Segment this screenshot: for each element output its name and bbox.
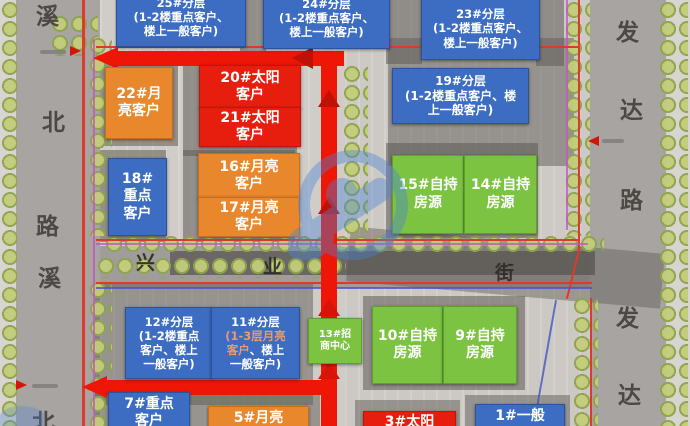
- entrance-arrow-icon: [16, 380, 27, 390]
- right-road-label: 达: [618, 385, 641, 408]
- left-road-label: 溪: [38, 268, 61, 291]
- route-arrowhead-up-icon: [318, 299, 340, 316]
- route-line-magenta: [93, 40, 95, 426]
- tree-row: [0, 0, 17, 426]
- zone-box-1: 1#一般: [475, 404, 565, 426]
- entrance-arrow-icon: [588, 136, 599, 146]
- zone-box-10: 10#自持房源: [372, 306, 443, 384]
- route-arrowhead-up-icon: [318, 362, 340, 379]
- zone-box-17: 17#月亮客户: [198, 197, 300, 237]
- route-line-magenta: [566, 0, 568, 230]
- left-road-label: 路: [36, 216, 59, 239]
- right-road-label: 发: [616, 308, 639, 331]
- site-boundary-line: [82, 0, 85, 426]
- right-road-label: 达: [620, 100, 643, 123]
- zone-box-18: 18#重点客户: [108, 158, 167, 236]
- zone-box-25: 25#分层(1-2楼重点客户、楼上一般客户): [116, 0, 246, 47]
- zone-box-20: 20#太阳客户: [199, 65, 301, 109]
- watermark-logo-icon: [0, 406, 44, 426]
- entrance-arrow-icon: [70, 46, 81, 56]
- zone-box-24: 24#分层(1-2楼重点客户、楼上一般客户): [263, 0, 390, 49]
- middle-street-label: 业: [263, 258, 282, 277]
- zone-box-19: 19#分层(1-2楼重点客户、楼上一般客户): [392, 68, 529, 124]
- zone-box-21: 21#太阳客户: [199, 107, 301, 147]
- route-arrowhead-left-icon: [82, 376, 107, 398]
- site-boundary-line: [96, 282, 592, 284]
- tree-row: [572, 296, 598, 426]
- right-road-label: 发: [616, 22, 639, 45]
- site-boundary-line: [590, 298, 592, 426]
- zone-box-11: 11#分层 (1-3层月亮 客户、楼上 一般客户): [211, 307, 300, 379]
- route-arrowhead-up-icon: [318, 90, 340, 107]
- zone-box-5: 5#月亮: [208, 406, 309, 426]
- route-line-magenta: [96, 243, 588, 245]
- route-arrowhead-left-icon: [93, 47, 118, 69]
- zone-box-15: 15#自持房源: [392, 155, 464, 234]
- zone-box-22: 22#月亮客户: [105, 67, 173, 139]
- route-line-blue: [96, 287, 592, 289]
- site-boundary-line: [96, 239, 580, 241]
- zone-box-9: 9#自持房源: [443, 306, 517, 384]
- zone-box-16: 16#月亮客户: [198, 153, 300, 199]
- tree-row: [658, 0, 688, 426]
- right-road-label: 路: [620, 190, 643, 213]
- zone-box-3: 3#太阳: [363, 411, 456, 426]
- zone-box-14: 14#自持房源: [464, 155, 537, 234]
- entrance-marker-text: [40, 50, 66, 54]
- route-arrowhead-up-icon: [318, 197, 340, 214]
- middle-street-label: 街: [495, 264, 514, 283]
- zone-box-13-sales-center: 13#招商中心: [308, 318, 362, 364]
- entrance-marker-text: [32, 384, 58, 388]
- zone-box-12: 12#分层(1-2楼重点客户、楼上一般客户): [125, 307, 213, 379]
- zone-box-23: 23#分层(1-2楼重点客户、楼上一般客户): [421, 0, 540, 60]
- tree-row: [96, 256, 346, 278]
- zone-box-7: 7#重点客户: [108, 392, 190, 426]
- site-plan: 溪 北 路 溪 北 发 达 路 发 达 兴 业 街 25#分层(1-2楼重点客户…: [0, 0, 690, 426]
- tree-row: [342, 64, 368, 238]
- left-road-label: 溪: [36, 6, 59, 29]
- middle-street-label: 兴: [136, 254, 155, 273]
- left-road-label: 北: [42, 112, 65, 135]
- site-boundary-line: [578, 0, 580, 252]
- entrance-marker-text: [602, 139, 624, 143]
